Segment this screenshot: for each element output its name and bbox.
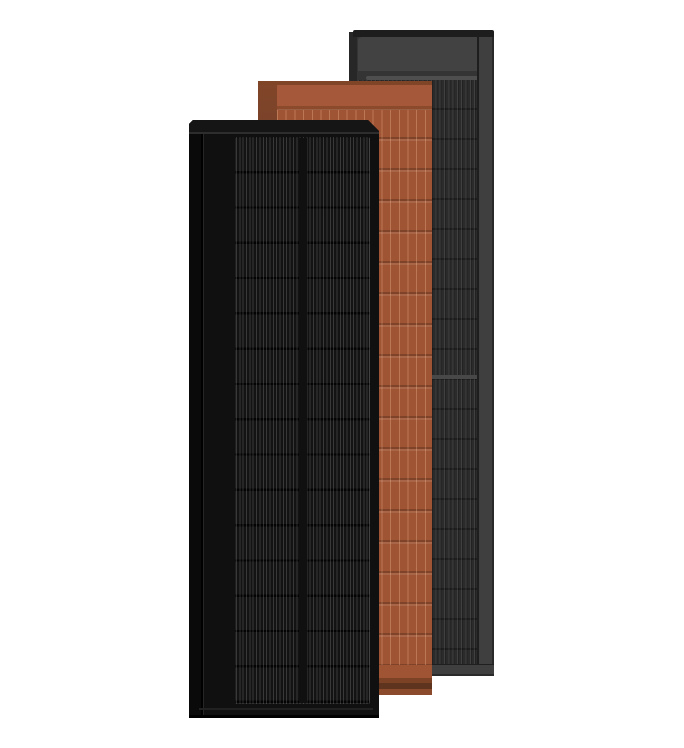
black-panel-bottom-edge <box>189 715 379 718</box>
slate-panel-header-sheet <box>358 37 489 71</box>
terracotta-panel-top-band <box>277 85 432 106</box>
slate-panel-top-frame <box>353 30 494 37</box>
matte-black-solar-panel <box>189 120 379 718</box>
black-panel-bottom-frame-line <box>199 708 373 710</box>
product-render-scene <box>0 0 684 748</box>
black-panel-left-side-face <box>189 120 204 718</box>
black-panel-cell-grid <box>235 137 370 704</box>
black-panel-center-gap <box>299 138 307 703</box>
slate-panel-right-frame <box>477 37 494 676</box>
black-panel-top-frame <box>189 120 379 134</box>
